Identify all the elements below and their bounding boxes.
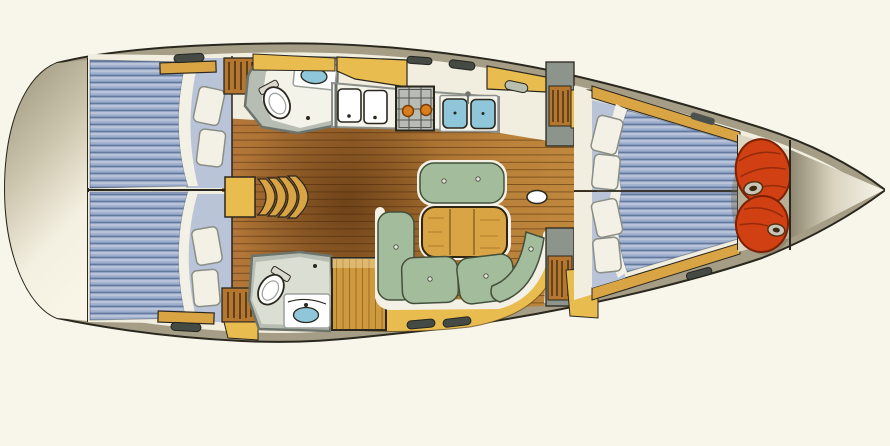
shelf xyxy=(158,311,214,324)
faucet xyxy=(465,91,471,97)
bench-seat xyxy=(417,160,507,206)
double-berth xyxy=(90,60,188,188)
pillow xyxy=(591,154,620,191)
burner xyxy=(421,105,432,116)
burner xyxy=(403,106,414,117)
sail-locker xyxy=(730,134,799,255)
double-sink xyxy=(440,91,498,131)
pillow xyxy=(592,237,621,274)
companionway-steps xyxy=(225,176,308,218)
vanity-counter xyxy=(284,294,330,328)
aft-cabin-starboard xyxy=(88,190,232,324)
deck-hatch xyxy=(174,53,204,63)
aft-cabin-port xyxy=(88,54,232,188)
boat-floorplan xyxy=(0,0,890,446)
double-berth xyxy=(90,192,188,320)
head-starboard xyxy=(249,252,333,331)
shelf xyxy=(160,61,216,74)
engine-box xyxy=(225,177,255,217)
washbasin xyxy=(294,308,319,323)
deck-hatch xyxy=(407,56,432,65)
pillow xyxy=(196,129,226,168)
pillow xyxy=(191,269,220,307)
pillow xyxy=(191,226,223,266)
dining-table xyxy=(419,204,511,260)
stove xyxy=(396,87,434,131)
mast-step xyxy=(527,191,547,204)
deck-hatch xyxy=(171,322,201,332)
